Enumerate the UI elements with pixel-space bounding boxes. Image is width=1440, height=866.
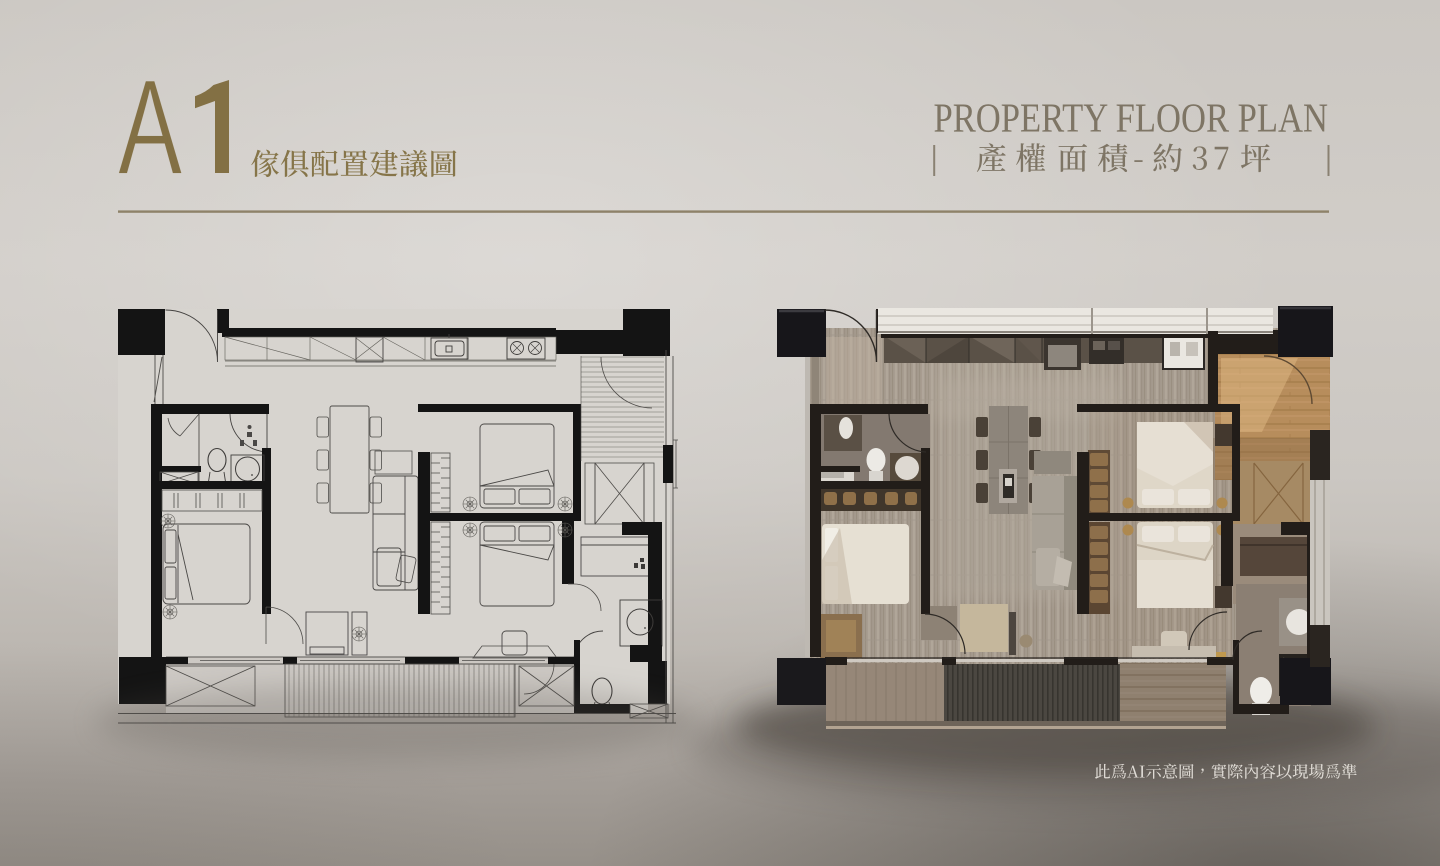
svg-text:PROPERTY FLOOR PLAN: PROPERTY FLOOR PLAN — [934, 94, 1329, 140]
